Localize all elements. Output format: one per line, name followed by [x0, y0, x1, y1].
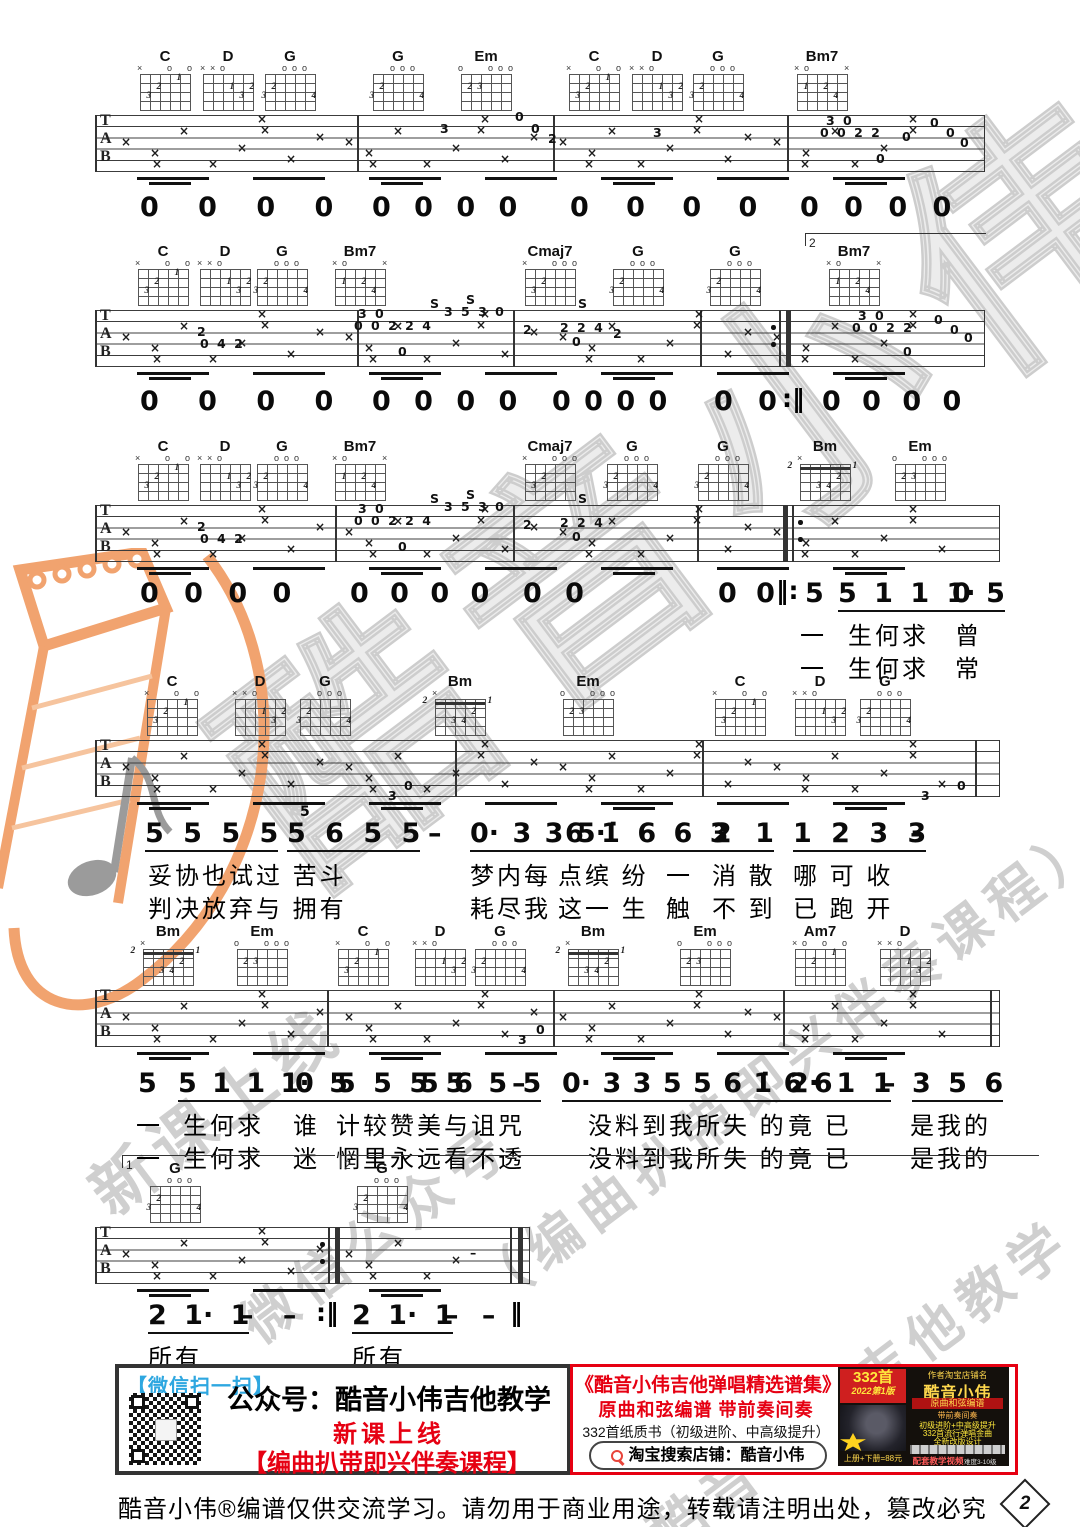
beam: [381, 377, 423, 380]
beam: [845, 182, 887, 185]
chord-grid: 32: [525, 464, 576, 501]
tab-note: 0: [946, 125, 957, 140]
chord-diagram: Bm×23412: [432, 674, 488, 736]
strum-mark: ×: [286, 1264, 296, 1278]
barline: [529, 1227, 531, 1284]
chord-name: G: [147, 1161, 203, 1176]
strum-mark: ×: [422, 1032, 432, 1046]
melody-number: 5 5 5 5: [145, 818, 278, 852]
strum-mark: ×: [260, 998, 270, 1012]
beam: [369, 1052, 441, 1055]
barline: [95, 1227, 97, 1284]
ad-fretboard-photo: [910, 1445, 1005, 1454]
strum-mark: ×: [743, 520, 753, 534]
chord-diagram: Gooo234: [857, 674, 913, 736]
chord-string-marks: ooo: [147, 1176, 203, 1186]
strum-mark: ×: [772, 525, 782, 539]
chord-diagram: Gooo234: [695, 439, 751, 501]
chord-grid: 123: [200, 269, 251, 306]
strum-mark: ×: [344, 330, 354, 344]
tab-note: 0: [876, 151, 887, 166]
strum-mark: ×: [315, 755, 325, 769]
chord-string-marks: ××o: [197, 454, 253, 464]
lyrics-text: 曾: [955, 616, 982, 651]
chord-diagram: C×oo321: [135, 439, 191, 501]
chord-name: Em: [458, 49, 514, 64]
chord-name: G: [707, 244, 763, 259]
strum-mark: ×: [315, 1005, 325, 1019]
chord-string-marks: ××o: [197, 259, 253, 269]
beam: [613, 572, 655, 575]
strum-mark: ×: [476, 123, 486, 137]
melody-number: 3 5 6: [912, 1068, 1003, 1102]
strum-mark: ×: [500, 542, 510, 556]
melody-number: –: [882, 1068, 896, 1099]
chord-diagram: C×oo321: [137, 49, 193, 111]
chord-diagram: D××o123: [200, 49, 256, 111]
songbook-box: 《酷音小伟吉他弹唱精选谱集》 原曲和弦编谱 带前奏间奏 332首纸质书（初级进阶…: [570, 1364, 1018, 1475]
repeat-sign: ‖:: [776, 576, 799, 605]
beam: [613, 807, 655, 810]
strum-mark: ×: [368, 547, 378, 561]
repeat-dot: [798, 520, 803, 525]
chord-name: Bm: [797, 439, 853, 454]
repeat-bar: [783, 505, 788, 562]
chord-grid: 123: [880, 949, 931, 986]
strum-mark: ×: [500, 152, 510, 166]
strum-mark: ×: [692, 748, 702, 762]
chord-string-marks: oooo: [234, 939, 290, 949]
chord-string-marks: ooo: [254, 454, 310, 464]
chord-diagram: Gooo234: [354, 1161, 410, 1223]
melody-number: 2· 1 1: [790, 1068, 891, 1102]
chord-name: Em: [892, 439, 948, 454]
strum-mark: ×: [121, 1010, 131, 1024]
barline: [327, 990, 329, 1047]
strum-mark: ×: [636, 352, 646, 366]
tab-note: 0: [934, 312, 945, 327]
chord-name: D: [877, 924, 933, 939]
chord-name: D: [197, 439, 253, 454]
chord-grid: 23: [237, 949, 288, 986]
strum-mark: ×: [344, 525, 354, 539]
melody-number: 0 0 0 0: [570, 192, 757, 223]
qr-center-logo: [155, 1419, 177, 1441]
strum-mark: ×: [723, 777, 733, 791]
strum-mark: ×: [636, 1032, 646, 1046]
chord-name: G: [610, 244, 666, 259]
chord-string-marks: ×o×: [332, 259, 388, 269]
lyrics-text: 生何求: [848, 616, 929, 651]
chord-grid: 23412: [800, 464, 851, 501]
strum-mark: ×: [152, 1032, 162, 1046]
strum-mark: ×: [208, 1269, 218, 1283]
chord-string-marks: ooo: [857, 689, 913, 699]
repeat-bar: [328, 1227, 330, 1284]
strum-mark: ×: [451, 1016, 461, 1030]
strum-mark: ×: [237, 141, 247, 155]
taobao-ad: 332首 2022第1版 上册+下册=88元 作者淘宝店铺名 酷音小伟 原曲和弦…: [838, 1367, 1009, 1466]
strum-mark: ×: [665, 766, 675, 780]
tab-note: 2: [523, 322, 534, 337]
beam: [149, 572, 191, 575]
lyrics-text: 判决放弃与 拥有: [148, 889, 347, 924]
chord-string-marks: ××o: [232, 689, 288, 699]
chord-grid: 23: [461, 74, 512, 111]
strum-mark: ×: [152, 782, 162, 796]
songbook-subtitle: 原曲和弦编谱 带前奏间奏: [575, 1396, 837, 1422]
staff-letter: B: [100, 343, 111, 361]
strum-mark: ×: [260, 748, 270, 762]
chord-name: D: [792, 674, 848, 689]
chord-name: C: [712, 674, 768, 689]
staff-letter: T: [100, 987, 111, 1005]
chord-string-marks: ooo: [472, 939, 528, 949]
strum-mark: ×: [879, 531, 889, 545]
chord-string-marks: ooo: [370, 64, 426, 74]
beam: [253, 1052, 325, 1055]
strum-mark: ×: [558, 135, 568, 149]
tab-note: 2: [548, 131, 559, 146]
strum-mark: ×: [879, 766, 889, 780]
lyrics-text: 不 到: [712, 889, 776, 924]
chord-grid: 234: [710, 269, 761, 306]
lyrics-text: 一: [800, 616, 827, 651]
volta-bracket: 2: [340, 1155, 1039, 1168]
beam: [369, 567, 441, 570]
chord-grid: 23412: [568, 949, 619, 986]
lyrics-text: 一: [666, 856, 693, 891]
beam: [149, 807, 191, 810]
strum-mark: ×: [772, 760, 782, 774]
melody-number: 0 5: [952, 578, 1005, 612]
chord-diagram: Cmaj7×ooo32: [522, 439, 578, 501]
chord-string-marks: ooo: [604, 454, 660, 464]
strum-mark: ×: [286, 777, 296, 791]
barline: [95, 115, 97, 172]
chord-string-marks: ooo: [254, 259, 310, 269]
melody-number: 0 0 0 0: [552, 386, 667, 417]
copyright-note: 酷音小伟®编谱仅供交流学习。请勿用于商业用途，转载请注明出处，篡改必究: [118, 1489, 987, 1524]
melody-number: –: [512, 1068, 526, 1099]
repeat-bar: [335, 1227, 340, 1284]
chord-string-marks: ×oo: [135, 454, 191, 464]
barline: [357, 115, 359, 172]
beam: [833, 372, 905, 375]
chord-name: G: [254, 244, 310, 259]
melody-number: 6 1̇ 6 6 3: [565, 818, 729, 852]
strum-mark: ×: [723, 347, 733, 361]
strum-mark: ×: [260, 318, 270, 332]
barline: [95, 740, 97, 797]
beam: [253, 372, 325, 375]
chord-name: G: [254, 439, 310, 454]
strum-mark: ×: [584, 157, 594, 171]
chord-grid: 234: [300, 699, 351, 736]
chord-name: C: [137, 49, 193, 64]
beam: [833, 802, 905, 805]
tab-note: 3 5 3 0: [444, 499, 506, 514]
strum-mark: ×: [850, 157, 860, 171]
chord-grid: 234: [613, 269, 664, 306]
strum-mark: ×: [692, 123, 702, 137]
chord-name: G: [370, 49, 426, 64]
lyrics-text: 妥协也试过 苦斗: [148, 856, 347, 891]
chord-diagram: Gooo234: [262, 49, 318, 111]
beam: [253, 567, 325, 570]
strum-mark: ×: [800, 1032, 810, 1046]
chord-string-marks: ×ooo: [792, 939, 848, 949]
chord-diagram: C×oo321: [566, 49, 622, 111]
tab-note: S: [430, 491, 441, 506]
chord-name: C: [135, 439, 191, 454]
chord-name: Bm: [432, 674, 488, 689]
tab-note: 0 4 2: [200, 531, 245, 546]
lyrics-text: 哪 可 收: [793, 856, 893, 891]
strum-mark: ×: [476, 998, 486, 1012]
staff-letter: T: [100, 737, 111, 755]
strum-mark: ×: [179, 999, 189, 1013]
official-account-label: 公众号：酷音小伟吉他教学: [215, 1378, 563, 1417]
chord-name: Bm: [140, 924, 196, 939]
strum-mark: ×: [286, 347, 296, 361]
tab-note: 0: [404, 778, 415, 793]
repeat-sign: :‖: [316, 1298, 339, 1327]
beam: [149, 1057, 191, 1060]
strum-mark: ×: [879, 1016, 889, 1030]
lyrics-text: 消 散: [712, 856, 776, 891]
chord-name: Em: [560, 674, 616, 689]
chord-diagram: Emoooo23: [234, 924, 290, 986]
ad-video-label: 配套教学视频: [908, 1455, 968, 1466]
chord-diagram: Cmaj7×ooo32: [522, 244, 578, 306]
tab-note: S: [578, 491, 589, 506]
taobao-search-text: 淘宝搜索店铺：酷音小伟: [628, 1447, 804, 1464]
strum-mark: ×: [800, 547, 810, 561]
beam: [149, 182, 191, 185]
chord-diagram: Gooo234: [472, 924, 528, 986]
chord-diagram: D××o123: [629, 49, 685, 111]
chord-string-marks: ooo: [354, 1176, 410, 1186]
chord-string-marks: ooo: [297, 689, 353, 699]
melody-number: 0 0 0 0: [372, 192, 517, 223]
strum-mark: ×: [368, 352, 378, 366]
strum-mark: ×: [937, 777, 947, 791]
chord-name: D: [197, 244, 253, 259]
chord-diagram: Bm7×o×124: [332, 244, 388, 306]
strum-mark: ×: [393, 999, 403, 1013]
strum-mark: ×: [344, 760, 354, 774]
barline: [95, 990, 97, 1047]
strum-mark: ×: [208, 782, 218, 796]
repeat-dot: [320, 1242, 325, 1247]
chord-diagram: D××o123: [412, 924, 468, 986]
strum-mark: ×: [451, 141, 461, 155]
tab-note: 0 0 2 2 4: [354, 318, 433, 333]
chord-name: Em: [677, 924, 733, 939]
chord-diagram: D××o123: [877, 924, 933, 986]
repeat-dot: [771, 342, 776, 347]
chord-string-marks: ××o: [792, 689, 848, 699]
strum-mark: ×: [636, 157, 646, 171]
strum-mark: ×: [152, 547, 162, 561]
strum-mark: ×: [260, 513, 270, 527]
strum-mark: ×: [422, 352, 432, 366]
chord-grid: 124: [797, 74, 848, 111]
beam: [381, 807, 423, 810]
chord-diagram: Bm7×o×124: [826, 244, 882, 306]
staff-letter: A: [100, 130, 112, 148]
chord-name: G: [262, 49, 318, 64]
strum-mark: ×: [422, 157, 432, 171]
staff-letter: B: [100, 773, 111, 791]
barline: [95, 310, 97, 367]
beam: [253, 177, 325, 180]
chord-string-marks: ××o: [877, 939, 933, 949]
tab-staff: TAB×××××××××××××××××××××××××××××××××××××…: [95, 505, 1000, 562]
chord-diagram: Emoooo23: [677, 924, 733, 986]
strum-mark: ×: [422, 782, 432, 796]
barline: [513, 310, 515, 367]
staff-letter: B: [100, 1260, 111, 1278]
strum-mark: ×: [208, 352, 218, 366]
melody-number: 0 0 0 0: [350, 578, 489, 609]
chord-string-marks: ooo: [610, 259, 666, 269]
strum-mark: ×: [368, 157, 378, 171]
tab-note: 0 0 2 2: [820, 125, 882, 140]
lyrics-text: 常: [955, 649, 982, 684]
barline: [553, 990, 555, 1047]
beam: [369, 372, 441, 375]
strum-mark: ×: [636, 547, 646, 561]
strum-mark: ×: [584, 1032, 594, 1046]
strum-mark: ×: [800, 352, 810, 366]
tab-note: 0: [398, 344, 409, 359]
strum-mark: ×: [121, 525, 131, 539]
songbook-title: 《酷音小伟吉他弹唱精选谱集》: [575, 1370, 837, 1397]
repeat-sign: ‖: [510, 1298, 523, 1327]
chord-diagram: Gooo234: [254, 439, 310, 501]
strum-mark: ×: [558, 1010, 568, 1024]
chord-diagram: Bm×23412: [797, 439, 853, 501]
chord-name: G: [354, 1161, 410, 1176]
qr-finder-icon: [131, 1449, 145, 1463]
chord-string-marks: ooo: [707, 259, 763, 269]
beam: [833, 567, 905, 570]
beam: [485, 567, 557, 570]
strum-mark: ×: [830, 319, 840, 333]
chord-name: Bm7: [794, 49, 850, 64]
songbook-desc: 332首纸质书（初级进阶、中高级提升）: [575, 1422, 837, 1442]
strum-mark: ×: [584, 547, 594, 561]
tab-note: 0: [531, 121, 542, 136]
chord-name: G: [472, 924, 528, 939]
strum-mark: ×: [584, 352, 594, 366]
melody-number: 0 0: [523, 578, 584, 609]
chord-string-marks: ×: [432, 689, 488, 699]
strum-mark: ×: [723, 542, 733, 556]
chord-string-marks: ×o×: [794, 64, 850, 74]
chord-diagram: D××o123: [792, 674, 848, 736]
melody-number: 0 0 0 0: [140, 192, 333, 223]
chord-string-marks: ×ooo: [522, 454, 578, 464]
chord-string-marks: ×oo: [566, 64, 622, 74]
chord-name: D: [412, 924, 468, 939]
strum-mark: ×: [607, 124, 617, 138]
chord-diagram: Gooo234: [147, 1161, 203, 1223]
melody-number: 5 1 1 1·: [178, 1068, 310, 1102]
strum-mark: ×: [368, 782, 378, 796]
repeat-dot: [320, 1259, 325, 1264]
strum-mark: ×: [368, 1269, 378, 1283]
chord-grid: 123: [415, 949, 466, 986]
staff-letter: T: [100, 502, 111, 520]
strum-mark: ×: [237, 766, 247, 780]
staff-letter: A: [100, 1005, 112, 1023]
chord-grid: 234: [698, 464, 749, 501]
beam: [613, 182, 655, 185]
strum-mark: ×: [665, 141, 675, 155]
melody-number: 0 0: [714, 386, 777, 417]
chord-diagram: D××o123: [197, 439, 253, 501]
tab-note: 0 4 2: [200, 336, 245, 351]
chord-string-marks: ××o: [200, 64, 256, 74]
strum-mark: ×: [286, 542, 296, 556]
tab-note: 0 0 2 2: [852, 320, 914, 335]
strum-mark: ×: [500, 1027, 510, 1041]
strum-mark: ×: [179, 1236, 189, 1250]
beam: [149, 1294, 191, 1297]
tab-note: 0: [964, 330, 975, 345]
strum-mark: ×: [208, 547, 218, 561]
melody-number: 0 0 0 0: [822, 386, 961, 417]
beam: [717, 567, 789, 570]
repeat-bar: [786, 310, 791, 367]
chord-grid: 234: [265, 74, 316, 111]
chord-diagram: Gooo234: [370, 49, 426, 111]
tab-note: 0: [515, 109, 526, 124]
beam: [717, 802, 789, 805]
chord-grid: 23: [895, 464, 946, 501]
strum-mark: ×: [850, 352, 860, 366]
chord-diagram: Bm×23412: [140, 924, 196, 986]
chord-name: G: [297, 674, 353, 689]
strum-mark: ×: [529, 755, 539, 769]
beam: [485, 177, 557, 180]
ad-badge: 332首 2022第1版: [840, 1369, 906, 1403]
strum-mark: ×: [152, 157, 162, 171]
strum-mark: ×: [422, 1269, 432, 1283]
chord-string-marks: ooo: [690, 64, 746, 74]
strum-mark: ×: [850, 1032, 860, 1046]
tab-note: 0: [572, 334, 583, 349]
staff-letter: A: [100, 520, 112, 538]
lyrics-text: 触: [666, 889, 693, 924]
melody-number: 0 0 0 0: [140, 386, 333, 417]
strum-mark: ×: [237, 1016, 247, 1030]
melody-number: 0 0: [718, 578, 775, 609]
lyrics-text: 计较赞美与诅咒: [336, 1106, 525, 1141]
strum-mark: ×: [393, 124, 403, 138]
lyrics-text: 点缤 纷: [558, 856, 649, 891]
strum-mark: ×: [850, 782, 860, 796]
beam: [601, 1052, 673, 1055]
chord-grid: 32: [525, 269, 576, 306]
tab-note: 0: [536, 1022, 547, 1037]
repeat-bar: [792, 505, 794, 562]
beam: [601, 567, 673, 570]
chord-grid: 124: [335, 464, 386, 501]
